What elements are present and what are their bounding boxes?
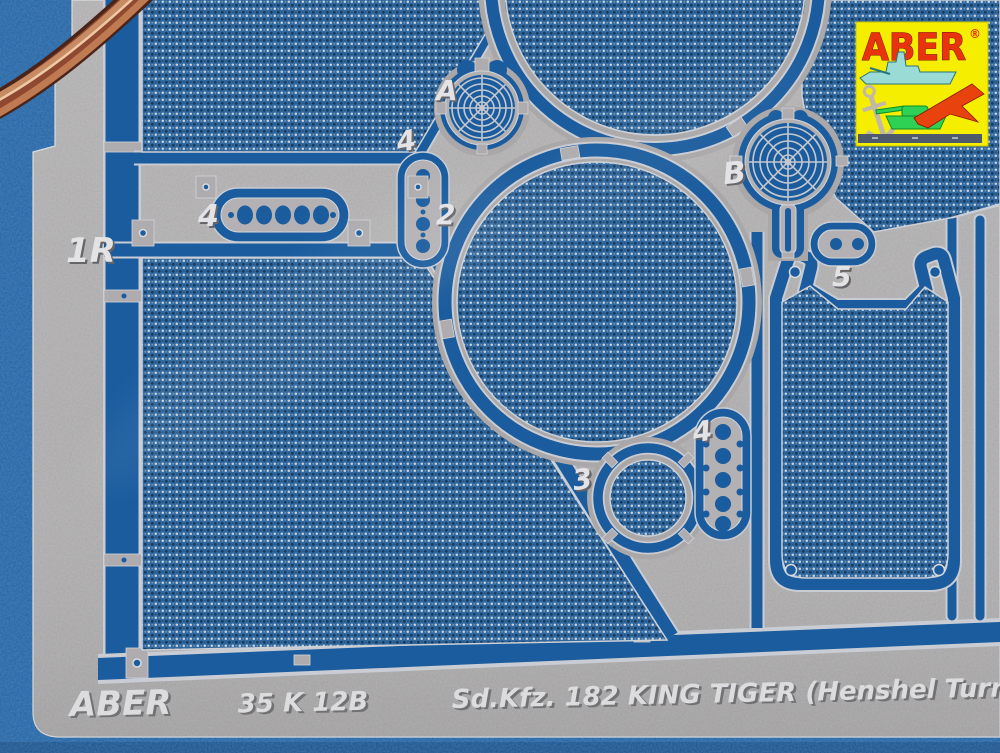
part-label-grille-a: A A	[434, 74, 460, 109]
svg-text:A: A	[434, 74, 458, 107]
logo-registered-mark: ®	[969, 27, 981, 41]
part-label-grille-b: B B	[721, 155, 750, 194]
aber-logo: ABER ®	[854, 22, 988, 146]
part-label-bracket-4: 4 4	[197, 199, 221, 236]
footer-product-code: 35 K 12B 35 K 12B	[237, 687, 371, 722]
blue-background-bottom-strip	[0, 742, 1000, 753]
svg-text:4: 4	[197, 199, 219, 234]
svg-text:B: B	[721, 155, 747, 192]
svg-text:5: 5	[832, 260, 851, 293]
photo-etched-fret-photo: 1R 1R 4 4 4 4 2 2 A A B B 5 5 3 3	[0, 0, 1000, 753]
left-frame-channel	[104, 0, 144, 658]
footer-brand: ABER ABER	[66, 683, 174, 727]
svg-text:1R: 1R	[66, 231, 116, 271]
mesh-disc-3	[598, 448, 698, 548]
logo-bottom-bar	[858, 134, 982, 143]
part-label-panel-5: 5 5	[832, 260, 853, 295]
logo-brand-text: ABER	[862, 26, 966, 69]
part-label-1r: 1R 1R	[66, 231, 118, 273]
bracket-part-4	[211, 188, 349, 242]
mesh-panel-5	[776, 254, 954, 584]
svg-text:ABER: ABER	[66, 683, 171, 725]
svg-text:35 K 12B: 35 K 12B	[237, 687, 368, 720]
